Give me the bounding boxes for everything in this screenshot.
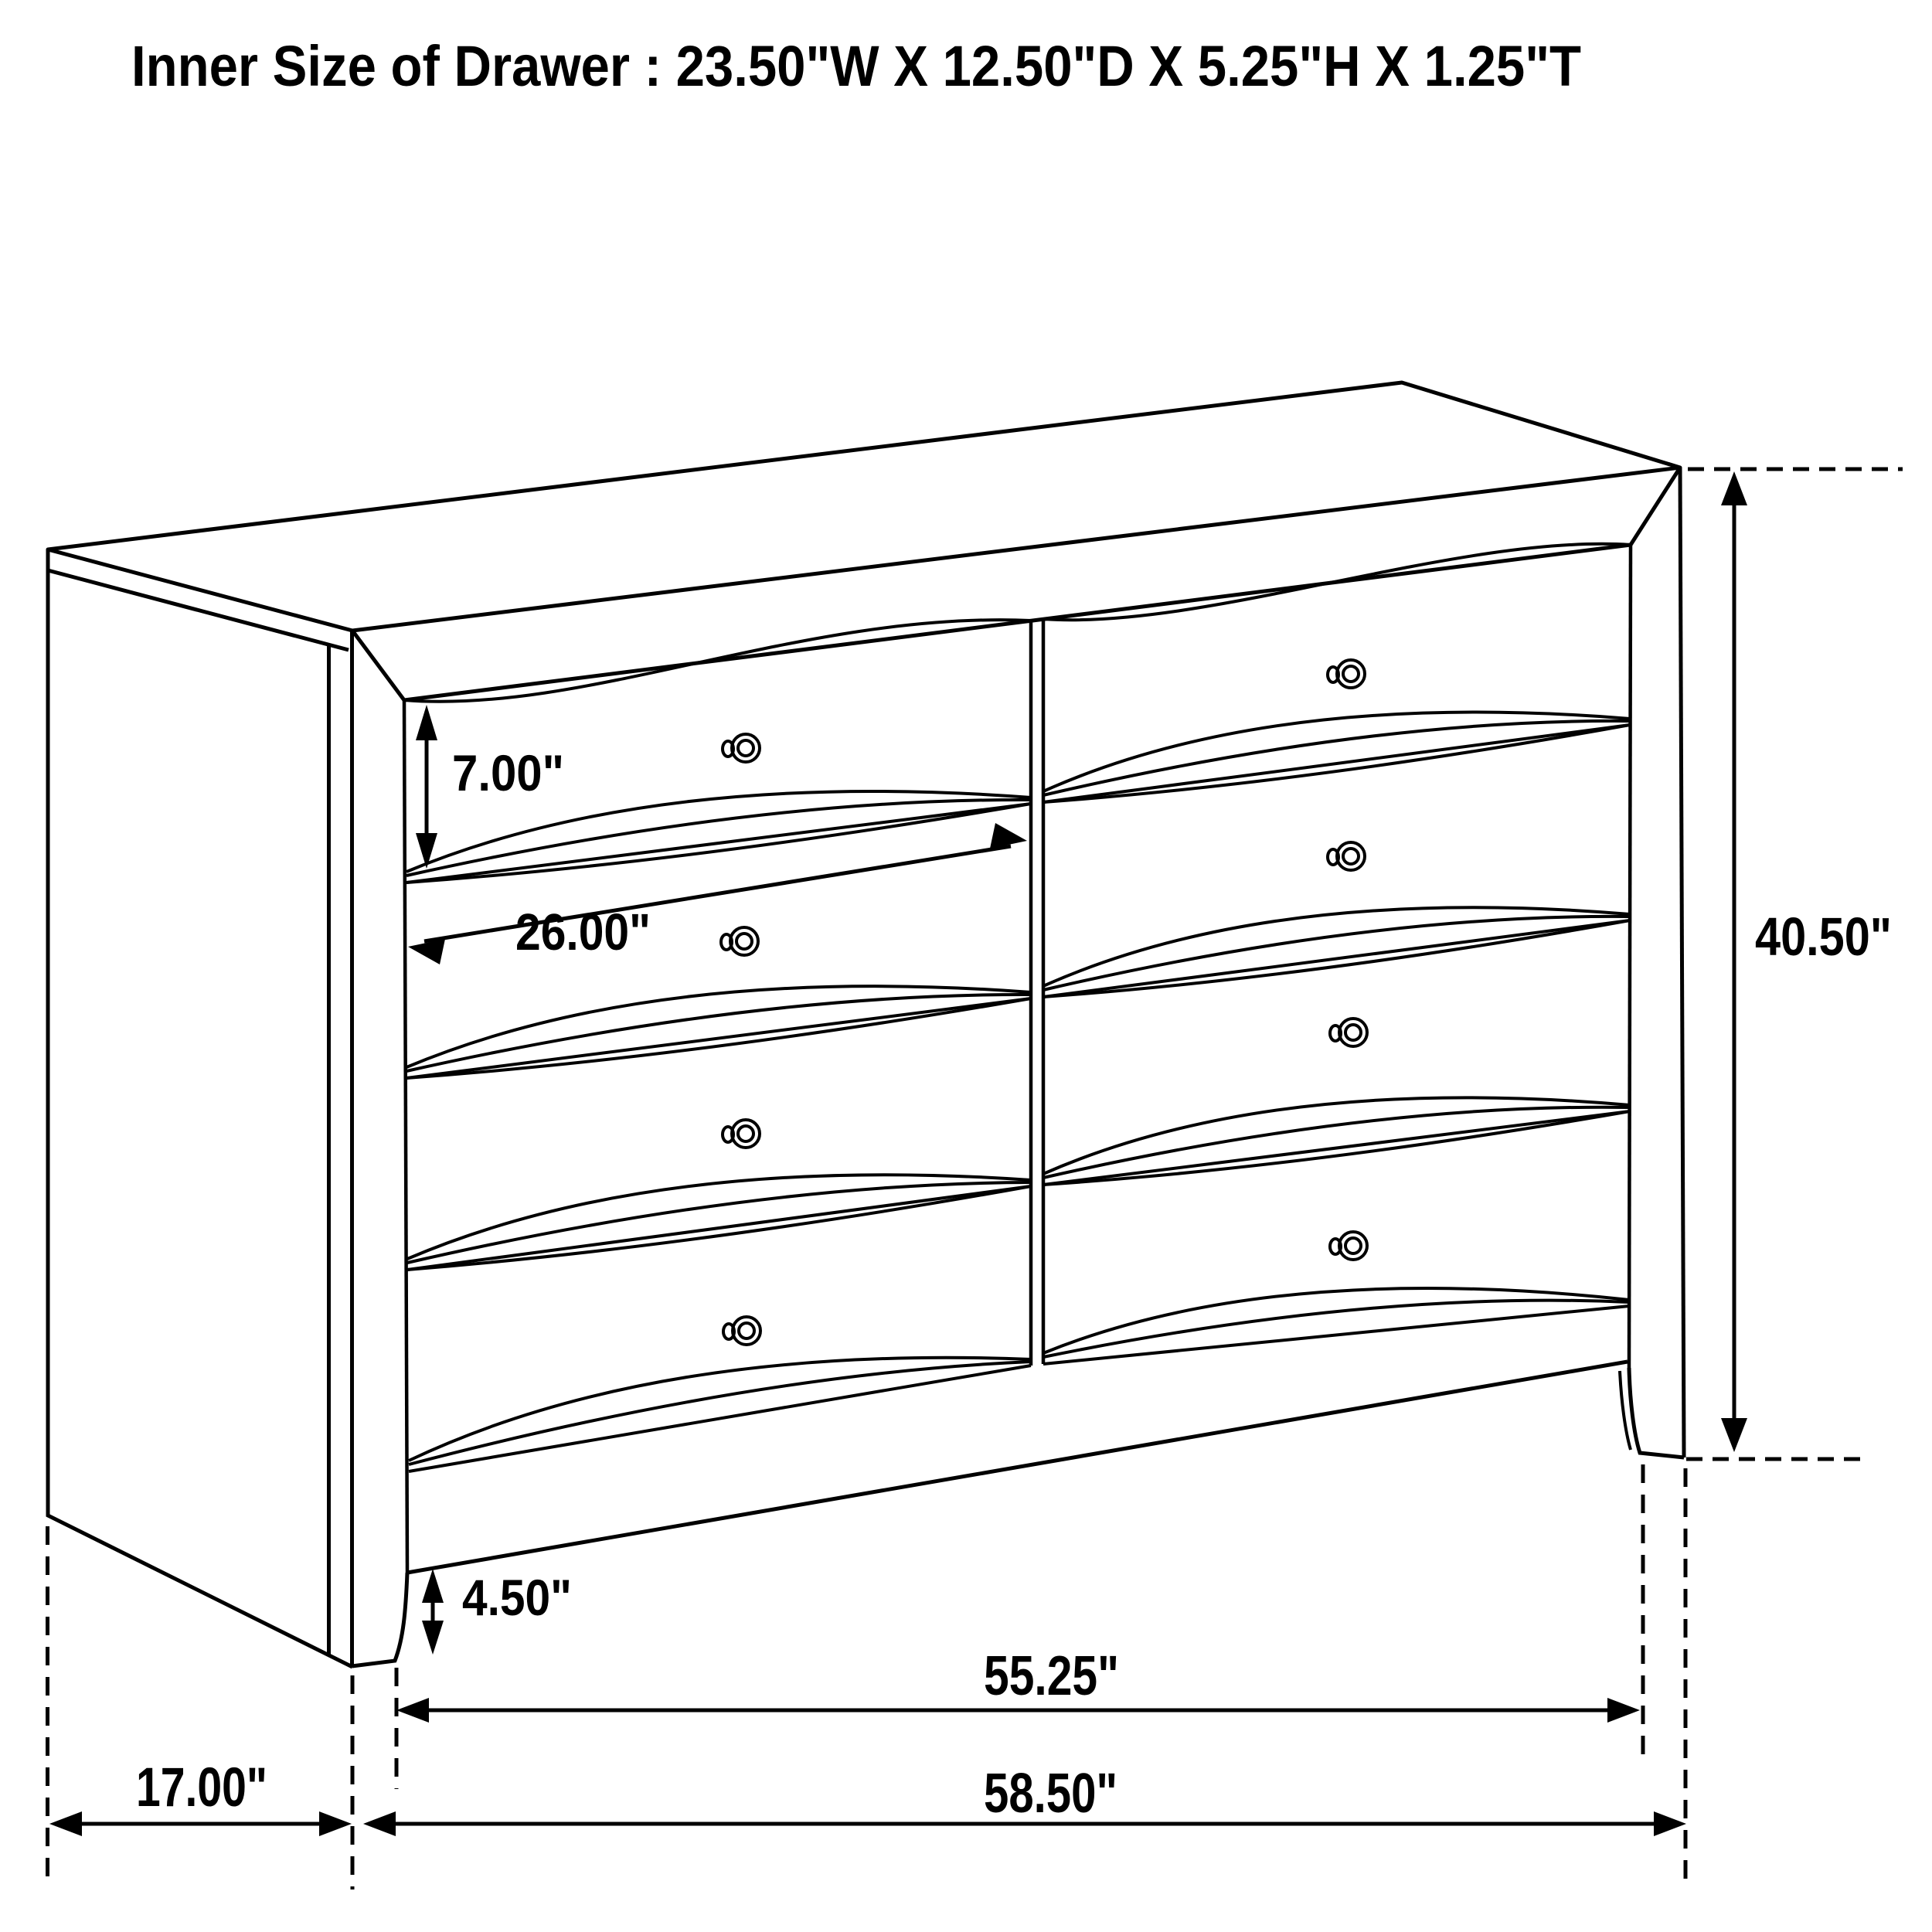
svg-text:55.25": 55.25" bbox=[984, 1645, 1119, 1707]
svg-text:40.50": 40.50" bbox=[1755, 906, 1892, 967]
svg-text:58.50": 58.50" bbox=[984, 1763, 1117, 1825]
svg-text:4.50": 4.50" bbox=[462, 1569, 572, 1626]
svg-text:Inner Size of Drawer : 23.50"W: Inner Size of Drawer : 23.50"W X 12.50"D… bbox=[131, 34, 1581, 98]
svg-text:26.00": 26.00" bbox=[515, 903, 651, 961]
svg-text:7.00": 7.00" bbox=[452, 744, 564, 801]
svg-text:17.00": 17.00" bbox=[136, 1757, 267, 1818]
